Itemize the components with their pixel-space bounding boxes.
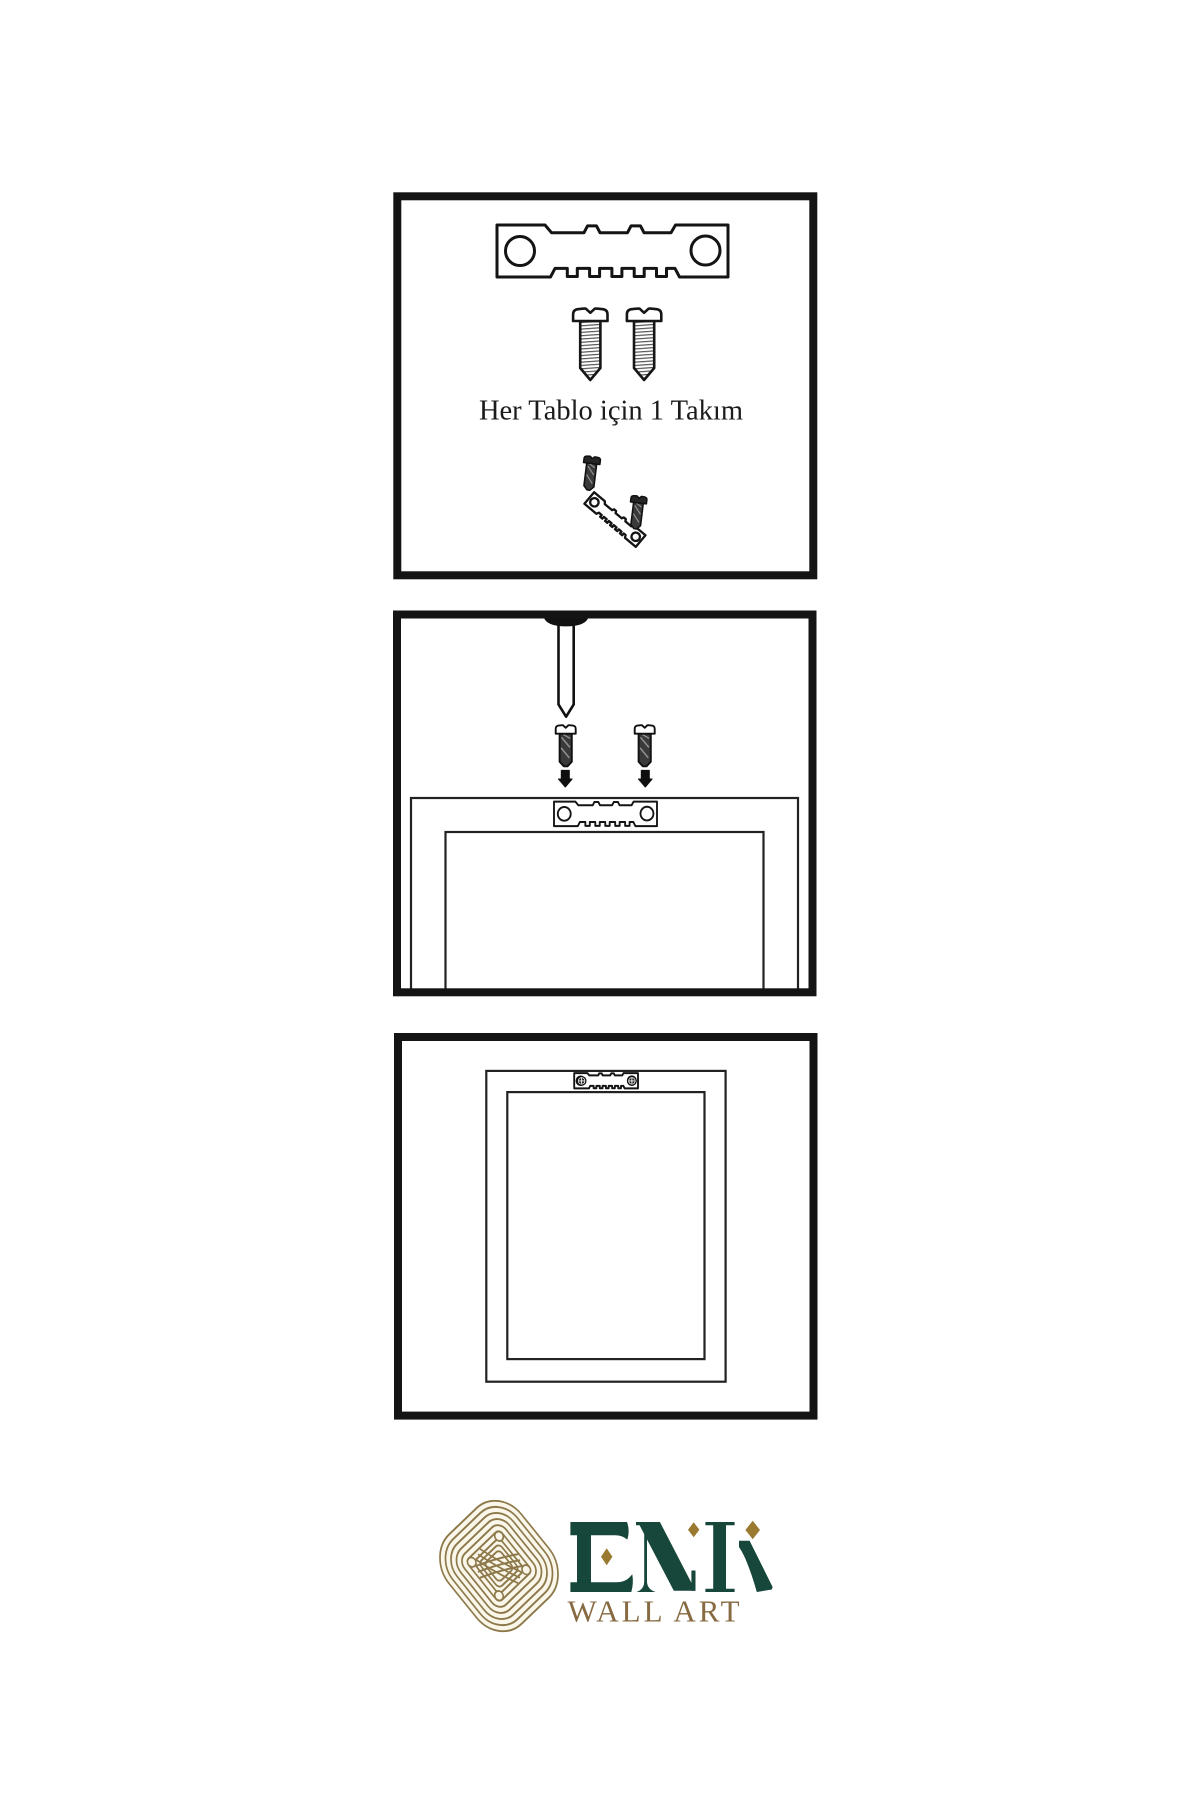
svg-text:WALL ART: WALL ART	[567, 1594, 742, 1629]
svg-text:Her Tablo için 1 Takım: Her Tablo için 1 Takım	[479, 396, 743, 427]
